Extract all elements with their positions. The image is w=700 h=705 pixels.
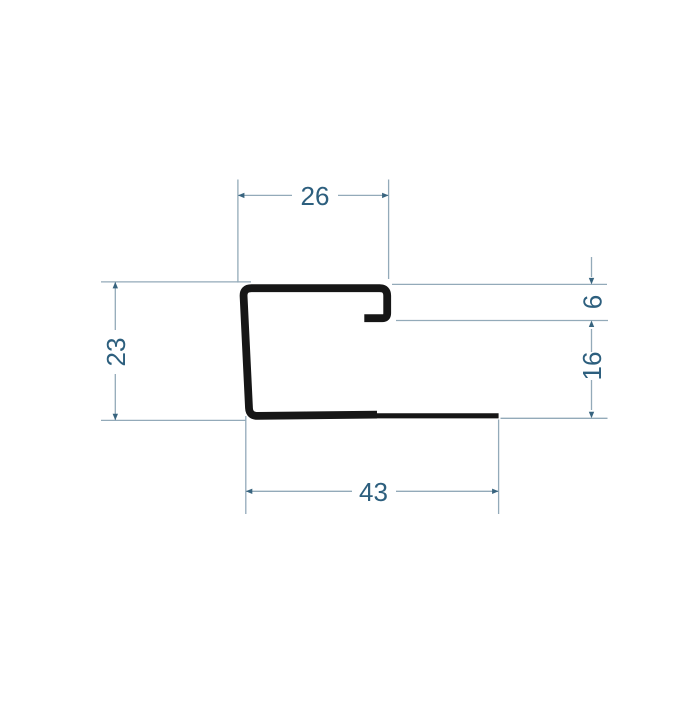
svg-text:16: 16 xyxy=(577,352,607,381)
svg-text:23: 23 xyxy=(101,338,131,367)
svg-text:43: 43 xyxy=(359,477,388,507)
svg-text:26: 26 xyxy=(301,181,330,211)
svg-text:6: 6 xyxy=(578,295,608,309)
